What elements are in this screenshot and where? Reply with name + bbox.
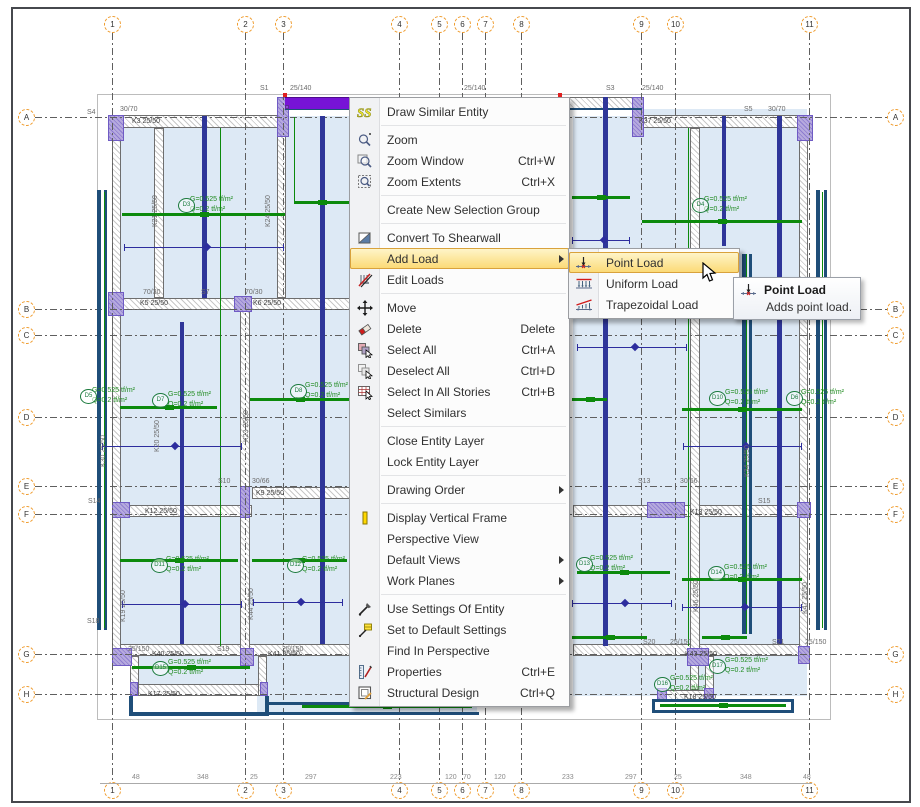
load-value-label: G=0.525 tf/m² — [590, 555, 633, 562]
plan-label: 70/30 — [245, 289, 263, 296]
plan-label: S19 — [217, 646, 229, 653]
draw-similar-icon: SS — [350, 101, 379, 122]
load-arrow — [721, 635, 730, 640]
grid-bubble-bottom: 2 — [237, 782, 254, 799]
grid-line-vertical — [283, 33, 284, 781]
grid-bubble-left: B — [18, 301, 35, 318]
dimension-tick — [577, 344, 578, 351]
move-icon — [350, 297, 379, 318]
plan-label: 25/150 — [128, 646, 149, 653]
load-value-label: G=0.525 tf/m² — [166, 556, 209, 563]
no-icon — [350, 451, 379, 472]
plan-label: K43 25/50 — [685, 651, 717, 658]
dimension-tick — [801, 443, 802, 450]
interior-beam — [777, 116, 782, 644]
grid-bubble-right: H — [887, 686, 904, 703]
menu-item-label: Display Vertical Frame — [387, 511, 507, 525]
dimension-line — [577, 347, 687, 348]
grid-bubble-right: F — [887, 506, 904, 523]
no-icon — [350, 479, 379, 500]
point-load-icon — [569, 252, 598, 273]
tooltip-title: Point Load — [764, 283, 826, 297]
submenu-arrow-icon — [559, 556, 564, 564]
menu-item-label: Zoom Window — [387, 154, 464, 168]
dimension-line — [682, 607, 802, 608]
bottom-dimension: 48 — [803, 774, 811, 781]
menu-item-shortcut: Ctrl+E — [521, 665, 569, 679]
no-icon — [350, 430, 379, 451]
grid-bubble-bottom: 7 — [477, 782, 494, 799]
menu-item-label: Select All — [387, 343, 436, 357]
menu-item-convert-to-shearwall[interactable]: Convert To Shearwall — [350, 227, 569, 248]
plan-label: K18 25/50 — [684, 694, 716, 701]
grid-bubble-top: 9 — [633, 16, 650, 33]
load-value-label: Q=0.2 tf/m² — [801, 399, 836, 406]
menu-item-select-similars[interactable]: Select Similars — [350, 402, 569, 423]
menu-separator — [381, 475, 566, 476]
plan-label: 70/30 — [143, 289, 161, 296]
menu-item-select-all[interactable]: Select AllCtrl+A — [350, 339, 569, 360]
dimension-line — [572, 240, 630, 241]
slab-id-bubble: D11 — [151, 558, 168, 573]
menu-item-create-new-selection-group[interactable]: Create New Selection Group — [350, 199, 569, 220]
plan-label: K5 25/50 — [140, 300, 168, 307]
load-value-label: Q=0.2 tf/m² — [724, 574, 759, 581]
menu-item-label: Delete — [387, 322, 422, 336]
slab-id-bubble: D5 — [80, 389, 97, 404]
plan-label: 25/140 — [290, 85, 311, 92]
load-value-label: Q=0.2 tf/m² — [590, 565, 625, 572]
grid-bubble-right: G — [887, 646, 904, 663]
dimension-line — [683, 446, 802, 447]
slab-id-bubble: D16 — [654, 677, 671, 692]
grid-bubble-left: H — [18, 686, 35, 703]
submenu-item-trapezoidal-load[interactable]: Trapezoidal Load — [569, 294, 739, 315]
menu-item-drawing-order[interactable]: Drawing Order — [350, 479, 569, 500]
trapezoidal-load-icon — [569, 294, 598, 315]
menu-item-shortcut: Ctrl+W — [518, 154, 569, 168]
menu-item-close-entity-layer[interactable]: Close Entity Layer — [350, 430, 569, 451]
bottom-dimension: 297 — [305, 774, 317, 781]
grid-bubble-bottom: 4 — [391, 782, 408, 799]
dimension-tick — [241, 601, 242, 608]
load-arrow — [318, 200, 327, 205]
load-value-label: G=0.525 tf/m² — [92, 387, 135, 394]
dimension-line — [253, 602, 343, 603]
plan-label: K41 25/50 — [268, 651, 300, 658]
plan-label: K12 25/50 — [145, 508, 177, 515]
grid-bubble-top: 2 — [237, 16, 254, 33]
grid-line-vertical — [809, 33, 810, 781]
zoom-window-icon — [350, 150, 379, 171]
submenu-arrow-icon — [559, 577, 564, 585]
edit-loads-icon — [350, 269, 379, 290]
slab-id-bubble: D12 — [287, 558, 304, 573]
load-value-label: G=0.525 tf/m² — [801, 389, 844, 396]
menu-separator — [381, 503, 566, 504]
menu-item-display-vertical-frame[interactable]: Display Vertical Frame — [350, 507, 569, 528]
bottom-dimension: 25 — [674, 774, 682, 781]
beam-hatch — [112, 116, 121, 656]
plan-label: K23 25/50 — [243, 410, 250, 442]
menu-item-work-planes[interactable]: Work Planes — [350, 570, 569, 591]
no-icon — [350, 549, 379, 570]
menu-separator — [381, 293, 566, 294]
plan-label: K19 25/50 — [120, 590, 127, 622]
menu-item-label: Draw Similar Entity — [387, 105, 488, 119]
dimension-tick — [342, 599, 343, 606]
menu-item-default-views[interactable]: Default Views — [350, 549, 569, 570]
menu-item-shortcut: Ctrl+Q — [520, 686, 569, 700]
plan-label: 25/140 — [464, 85, 485, 92]
menu-item-label: Add Load — [387, 252, 438, 266]
load-value-label: G=0.525 tf/m² — [725, 657, 768, 664]
menu-item-label: Zoom Extents — [387, 175, 461, 189]
grid-bubble-bottom: 1 — [104, 782, 121, 799]
dimension-chain-line — [100, 783, 812, 784]
menu-item-add-load[interactable]: Add Load — [350, 248, 569, 269]
grid-bubble-bottom: 10 — [667, 782, 684, 799]
menu-item-label: Trapezoidal Load — [606, 298, 698, 312]
menu-item-draw-similar-entity[interactable]: SSDraw Similar Entity — [350, 101, 569, 122]
load-value-label: Q=0.2 tf/m² — [305, 392, 340, 399]
grid-bubble-top: 8 — [513, 16, 530, 33]
bottom-dimension: 223 — [390, 774, 402, 781]
selection-grip — [285, 105, 289, 109]
bottom-dimension: 120 — [445, 774, 457, 781]
bottom-dimension: 25 — [250, 774, 258, 781]
menu-item-set-to-default-settings[interactable]: Set to Default Settings — [350, 619, 569, 640]
grid-bubble-right: E — [887, 478, 904, 495]
plan-label: S14 — [88, 498, 100, 505]
wall — [97, 190, 101, 630]
menu-item-label: Use Settings Of Entity — [387, 602, 504, 616]
plan-label: K44 25/50 — [248, 588, 255, 620]
menu-item-label: Lock Entity Layer — [387, 455, 479, 469]
plan-label: K9 25/50 — [256, 490, 284, 497]
beam-hatch — [799, 116, 808, 656]
column — [108, 292, 124, 316]
column — [108, 115, 124, 141]
load-value-label: Q=0.2 tf/m² — [704, 206, 739, 213]
menu-item-label: Set to Default Settings — [387, 623, 506, 637]
slab-id-bubble: D10 — [709, 391, 726, 406]
plan-label: 30/66 — [680, 478, 698, 485]
load-value-label: Q=0.2 tf/m² — [670, 685, 705, 692]
menu-separator — [381, 594, 566, 595]
zoom-extents-icon — [350, 171, 379, 192]
plan-label: K37 25/50 — [639, 118, 671, 125]
menu-separator — [381, 125, 566, 126]
load-value-label: G=0.525 tf/m² — [704, 196, 747, 203]
menu-item-zoom[interactable]: Zoom — [350, 129, 569, 150]
wall — [816, 190, 820, 630]
load-value-label: Q=0.2 tf/m² — [725, 399, 760, 406]
structural-design-icon — [350, 682, 379, 703]
menu-item-lock-entity-layer[interactable]: Lock Entity Layer — [350, 451, 569, 472]
grid-bubble-bottom: 6 — [454, 782, 471, 799]
grid-bubble-top: 3 — [275, 16, 292, 33]
shearwall-icon — [350, 227, 379, 248]
menu-item-properties[interactable]: PropertiesCtrl+E — [350, 661, 569, 682]
tooltip-body: Adds point load. — [766, 300, 852, 314]
plan-label: K46 25/50 — [693, 580, 700, 612]
load-value-label: G=0.525 tf/m² — [190, 196, 233, 203]
menu-item-label: Point Load — [606, 256, 663, 270]
menu-item-label: Select Similars — [387, 406, 466, 420]
dimension-tick — [124, 244, 125, 251]
mouse-cursor — [702, 262, 718, 284]
no-icon — [350, 528, 379, 549]
load-value-label: G=0.525 tf/m² — [670, 675, 713, 682]
grid-bubble-top: 10 — [667, 16, 684, 33]
plan-label: 25/150 — [670, 639, 691, 646]
plan-label: 25/150 — [805, 639, 826, 646]
context-menu: SSDraw Similar EntityZoomZoom WindowCtrl… — [349, 97, 570, 707]
menu-item-select-in-all-stories[interactable]: Select In All StoriesCtrl+B — [350, 381, 569, 402]
grid-bubble-top: 5 — [431, 16, 448, 33]
plan-label: S4 — [87, 109, 96, 116]
menu-item-structural-design[interactable]: Structural DesignCtrl+Q — [350, 682, 569, 703]
grid-bubble-bottom: 11 — [801, 782, 818, 799]
select-all-icon — [350, 339, 379, 360]
menu-item-label: Work Planes — [387, 574, 455, 588]
plan-label: S18 — [87, 618, 99, 625]
column — [240, 648, 254, 666]
dimension-tick — [671, 600, 672, 607]
interior-beam — [722, 116, 726, 246]
slab-id-bubble: D15 — [152, 661, 169, 676]
slab-id-bubble: D17 — [709, 659, 726, 674]
plan-label: K40 25/50 — [152, 651, 184, 658]
plan-label: K47 25/50 — [802, 582, 809, 614]
grid-bubble-left: E — [18, 478, 35, 495]
plan-label: S3 — [606, 85, 615, 92]
column — [647, 502, 685, 518]
grid-bubble-left: F — [18, 506, 35, 523]
load-value-label: G=0.525 tf/m² — [168, 391, 211, 398]
plan-label: K13 25/50 — [690, 509, 722, 516]
point-load-tooltip: Point Load Adds point load. — [733, 277, 861, 320]
wall — [652, 699, 794, 702]
pipette-icon — [350, 598, 379, 619]
load-value-label: Q=0.2 tf/m² — [302, 566, 337, 573]
grid-bubble-right: D — [887, 409, 904, 426]
point-load-icon — [740, 282, 758, 298]
load-value-label: G=0.525 tf/m² — [305, 382, 348, 389]
dimension-tick — [283, 244, 284, 251]
wall — [129, 712, 269, 716]
menu-item-label: Find In Perspective — [387, 644, 490, 658]
load-value-label: Q=0.2 tf/m² — [92, 397, 127, 404]
no-icon — [350, 248, 379, 269]
bottom-dimension: 233 — [562, 774, 574, 781]
properties-icon — [350, 661, 379, 682]
plan-label: K3 25/50 — [132, 118, 160, 125]
menu-item-move[interactable]: Move — [350, 297, 569, 318]
grid-bubble-top: 7 — [477, 16, 494, 33]
load-arrow — [586, 397, 595, 402]
menu-item-label: Zoom — [387, 133, 418, 147]
menu-item-label: Drawing Order — [387, 483, 465, 497]
menu-item-find-in-perspective[interactable]: Find In Perspective — [350, 640, 569, 661]
dimension-line — [124, 247, 284, 248]
menu-item-label: Properties — [387, 665, 442, 679]
plan-label: S21 — [772, 639, 784, 646]
bottom-dimension: 120 — [494, 774, 506, 781]
submenu-arrow-icon — [559, 486, 564, 494]
plan-label: S5 — [744, 106, 753, 113]
menu-item-delete[interactable]: DeleteDelete — [350, 318, 569, 339]
wall — [824, 190, 827, 630]
plan-label: S15 — [758, 498, 770, 505]
deselect-all-icon — [350, 360, 379, 381]
dimension-line — [102, 446, 242, 447]
grid-line-vertical — [675, 33, 676, 781]
menu-item-shortcut: Delete — [520, 322, 569, 336]
menu-item-perspective-view[interactable]: Perspective View — [350, 528, 569, 549]
svg-text:SS: SS — [357, 105, 371, 120]
slab-id-bubble: D3 — [178, 198, 195, 213]
wall — [652, 710, 794, 713]
grid-bubble-right: C — [887, 327, 904, 344]
plan-label: S10 — [218, 478, 230, 485]
grid-bubble-left: C — [18, 327, 35, 344]
plan-label: K6 25/50 — [253, 300, 281, 307]
grid-bubble-bottom: 5 — [431, 782, 448, 799]
plan-label: 30/70 — [768, 106, 786, 113]
plan-label: K24 25/50 — [265, 195, 272, 227]
no-icon — [350, 640, 379, 661]
plan-label: K21 25/50 — [152, 195, 159, 227]
slab-id-bubble: D6 — [786, 391, 803, 406]
load-value-label: G=0.525 tf/m² — [302, 556, 345, 563]
selection-handle — [283, 93, 287, 97]
load-line-vertical — [104, 192, 105, 628]
menu-item-label: Edit Loads — [387, 273, 444, 287]
dimension-tick — [241, 443, 242, 450]
grid-bubble-top: 4 — [391, 16, 408, 33]
menu-item-shortcut: Ctrl+A — [521, 343, 569, 357]
menu-item-label: Select In All Stories — [387, 385, 490, 399]
load-value-label: Q=0.2 tf/m² — [166, 566, 201, 573]
no-icon — [350, 402, 379, 423]
grid-bubble-right: A — [887, 109, 904, 126]
plan-label: S7 — [201, 289, 210, 296]
menu-item-edit-loads[interactable]: Edit Loads — [350, 269, 569, 290]
grid-bubble-left: A — [18, 109, 35, 126]
bottom-dimension: 348 — [740, 774, 752, 781]
dimension-tick — [572, 600, 573, 607]
dimension-line — [122, 604, 242, 605]
load-value-label: Q=0.2 tf/m² — [168, 401, 203, 408]
column — [112, 502, 130, 518]
menu-item-label: Perspective View — [387, 532, 479, 546]
column-icon — [350, 507, 379, 528]
slab-id-bubble: D4 — [692, 198, 709, 213]
slab-id-bubble: D8 — [290, 384, 307, 399]
grid-bubble-bottom: 9 — [633, 782, 650, 799]
slab-id-bubble: D13 — [576, 557, 593, 572]
application-window: 11223344556677889910101111AABBCCDDEEFFGG… — [0, 0, 920, 807]
grid-line-vertical — [641, 33, 642, 781]
zoom-icon — [350, 129, 379, 150]
load-line-vertical — [688, 128, 689, 646]
load-value-label: G=0.525 tf/m² — [724, 564, 767, 571]
menu-item-label: Close Entity Layer — [387, 434, 484, 448]
plan-label: 25/140 — [642, 85, 663, 92]
menu-item-zoom-extents[interactable]: Zoom ExtentsCtrl+X — [350, 171, 569, 192]
grid-bubble-bottom: 8 — [513, 782, 530, 799]
menu-separator — [381, 426, 566, 427]
bottom-dimension: 348 — [197, 774, 209, 781]
dimension-tick — [686, 344, 687, 351]
submenu-arrow-icon — [559, 255, 564, 263]
grid-bubble-top: 6 — [454, 16, 471, 33]
uniform-load-icon — [569, 273, 598, 294]
delete-icon — [350, 318, 379, 339]
plan-label: S1 — [260, 85, 269, 92]
menu-separator — [381, 223, 566, 224]
menu-item-zoom-window[interactable]: Zoom WindowCtrl+W — [350, 150, 569, 171]
plan-label: K30 25/50 — [100, 435, 107, 467]
menu-item-label: Convert To Shearwall — [387, 231, 501, 245]
load-value-label: Q=0.2 tf/m² — [168, 669, 203, 676]
plan-label: 30/70 — [120, 106, 138, 113]
plan-label: S20 — [643, 639, 655, 646]
load-line-vertical — [294, 117, 295, 201]
bottom-dimension: 297 — [625, 774, 637, 781]
menu-item-label: Move — [387, 301, 416, 315]
plan-label: 30/66 — [252, 478, 270, 485]
load-value-label: G=0.525 tf/m² — [168, 659, 211, 666]
load-value-label: Q=0.2 tf/m² — [190, 206, 225, 213]
menu-item-label: Default Views — [387, 553, 460, 567]
menu-separator — [381, 195, 566, 196]
grid-line-vertical — [112, 33, 113, 781]
menu-item-label: Uniform Load — [606, 277, 678, 291]
no-icon — [350, 199, 379, 220]
dimension-tick — [683, 443, 684, 450]
menu-item-shortcut: Ctrl+D — [521, 364, 569, 378]
menu-item-shortcut: Ctrl+X — [521, 175, 569, 189]
dimension-line — [572, 603, 672, 604]
no-icon — [350, 570, 379, 591]
select-stories-icon — [350, 381, 379, 402]
load-arrow — [597, 195, 606, 200]
bottom-dimension: 48 — [132, 774, 140, 781]
load-line-vertical — [822, 192, 823, 628]
menu-item-use-settings-of-entity[interactable]: Use Settings Of Entity — [350, 598, 569, 619]
menu-item-deselect-all[interactable]: Deselect AllCtrl+D — [350, 360, 569, 381]
grid-bubble-bottom: 3 — [275, 782, 292, 799]
menu-item-label: Deselect All — [387, 364, 450, 378]
pipette-default-icon — [350, 619, 379, 640]
menu-item-shortcut: Ctrl+B — [521, 385, 569, 399]
interior-beam — [180, 322, 184, 644]
load-arrow — [718, 219, 727, 224]
dimension-tick — [572, 237, 573, 244]
load-arrow — [606, 635, 615, 640]
plan-label: K17 25/50 — [148, 691, 180, 698]
slab-id-bubble: D14 — [708, 566, 725, 581]
grid-bubble-left: D — [18, 409, 35, 426]
grid-bubble-top: 11 — [801, 16, 818, 33]
bottom-dimension: 70 — [463, 774, 471, 781]
interior-beam — [320, 116, 325, 644]
dimension-tick — [629, 237, 630, 244]
slab-id-bubble: D7 — [152, 393, 169, 408]
